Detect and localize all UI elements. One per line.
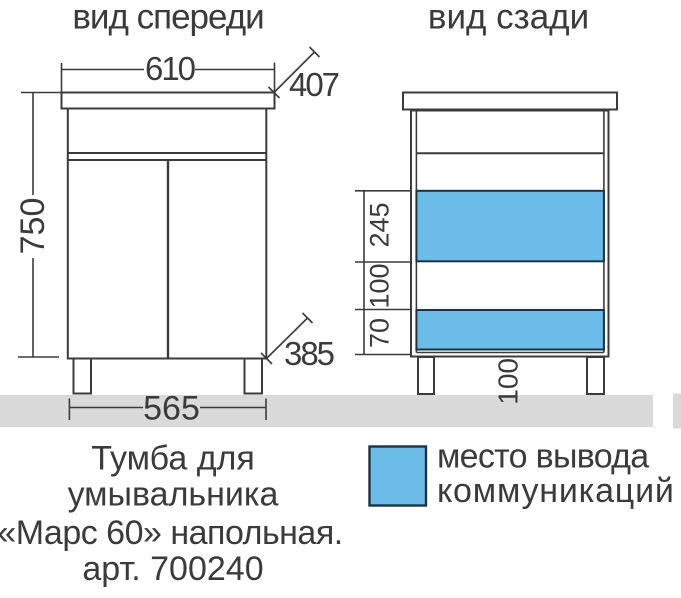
svg-text:385: 385 — [284, 335, 334, 372]
svg-text:«Марс 60» напольная.: «Марс 60» напольная. — [0, 514, 343, 552]
svg-text:100: 100 — [493, 358, 524, 405]
svg-text:место вывода: место вывода — [437, 438, 649, 476]
svg-text:вид спереди: вид спереди — [72, 0, 263, 37]
svg-text:коммуникаций: коммуникаций — [437, 472, 675, 510]
svg-text:750: 750 — [14, 198, 52, 255]
svg-text:Тумба для: Тумба для — [91, 440, 255, 478]
svg-text:арт. 700240: арт. 700240 — [82, 550, 263, 588]
svg-text:565: 565 — [143, 390, 200, 428]
svg-text:вид сзади: вид сзади — [428, 0, 589, 37]
svg-text:407: 407 — [289, 66, 339, 103]
svg-text:610: 610 — [145, 50, 196, 87]
svg-text:245: 245 — [365, 202, 395, 247]
svg-text:100: 100 — [365, 263, 395, 308]
svg-text:умывальника: умывальника — [68, 476, 279, 514]
svg-text:70: 70 — [365, 318, 395, 348]
